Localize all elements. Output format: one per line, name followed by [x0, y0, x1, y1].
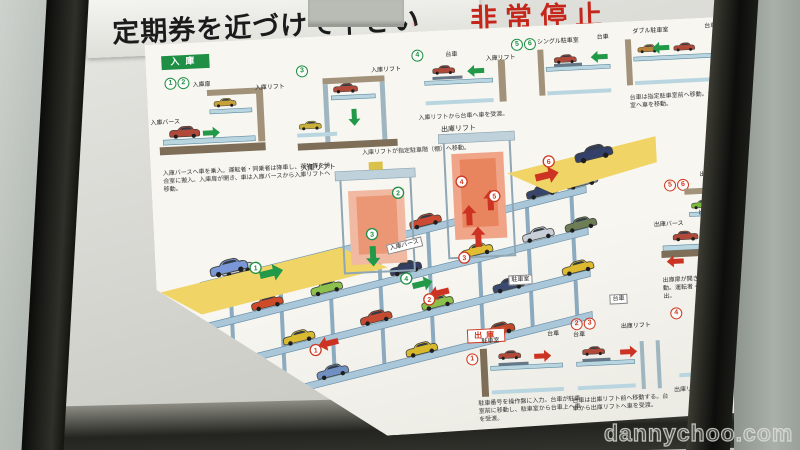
entry-door-label: 入庫扉	[192, 82, 210, 89]
single-room-label: シングル駐車室	[537, 38, 579, 46]
watermark: dannychoo.com	[604, 420, 793, 447]
green-arrow-left	[467, 64, 485, 77]
svg-text:3: 3	[462, 255, 466, 262]
exit-room-panel-drawing	[478, 343, 573, 401]
exit-dolly-label-2: 台車	[573, 332, 585, 339]
diagram-dolly-tag: 台車	[609, 294, 628, 305]
diagram-entry-step-3: 3	[366, 228, 378, 240]
dolly-label: 台車	[445, 52, 457, 59]
diagram-entry-step-4: 4	[400, 273, 412, 285]
diagram-entry-step-1: 1	[250, 262, 262, 274]
diagram-exit-step-3: 3	[459, 252, 471, 264]
exit-dolly-label: 台車	[547, 331, 559, 338]
diagram-entry-step-2: 2	[392, 187, 404, 199]
diagram-exit-step-6: 6	[543, 156, 555, 168]
svg-text:3: 3	[370, 232, 374, 239]
svg-text:1: 1	[253, 265, 257, 272]
parking-system-poster: 入庫 1 2 入庫扉 入庫リフト 入庫バース 3	[145, 15, 768, 446]
svg-text:6: 6	[547, 159, 551, 166]
green-arrow-left	[590, 50, 608, 63]
svg-text:1: 1	[314, 347, 318, 354]
diagram-exit-step-5: 5	[489, 190, 501, 202]
exit-room-caption: 駐車番号を操作盤に入力。台車が駐車室前に移動し、駐車室から台車上へ車を受渡。	[478, 396, 583, 424]
photo-scene: 定期券を近づけて下さい PLEASE 非常停止 入庫 1 2 入庫扉	[0, 0, 800, 450]
double-room-label: ダブル駐車室	[632, 27, 668, 35]
diagram-exit-step-2: 2	[424, 294, 436, 306]
diagram-exit-step-1: 1	[310, 344, 322, 356]
svg-text:5: 5	[492, 193, 496, 200]
dolly-label-2: 台車	[597, 34, 609, 41]
card-reader-housing	[308, 0, 404, 27]
diagram-room-tag: 駐車室	[508, 274, 532, 286]
svg-text:2: 2	[396, 190, 400, 197]
entry-step-3: 3	[296, 65, 309, 78]
entry-step-4: 4	[411, 49, 424, 62]
entry-lift-label-3: 入庫リフト	[486, 55, 516, 62]
entry-step-5: 5	[511, 39, 524, 52]
exit-dolly-panel-drawing	[571, 336, 666, 396]
lift-to-dolly-panel-drawing	[418, 57, 512, 109]
single-room-panel-drawing	[533, 44, 617, 100]
exit-room-label: 駐車室	[481, 338, 499, 345]
parking-machine-panel: 定期券を近づけて下さい PLEASE 非常停止 入庫 1 2 入庫扉	[62, 0, 734, 450]
red-arrow-right	[620, 345, 638, 358]
green-arrow-down	[348, 109, 361, 127]
entry-section-badge: 入庫	[161, 54, 210, 70]
dolly-transfer-caption: 入庫リフトから台車へ車を受渡。	[418, 110, 538, 124]
svg-text:4: 4	[460, 179, 464, 186]
diagram-exit-step-4: 4	[456, 176, 468, 188]
svg-text:2: 2	[427, 297, 431, 304]
svg-text:4: 4	[404, 276, 408, 283]
red-arrow-right	[534, 350, 552, 363]
